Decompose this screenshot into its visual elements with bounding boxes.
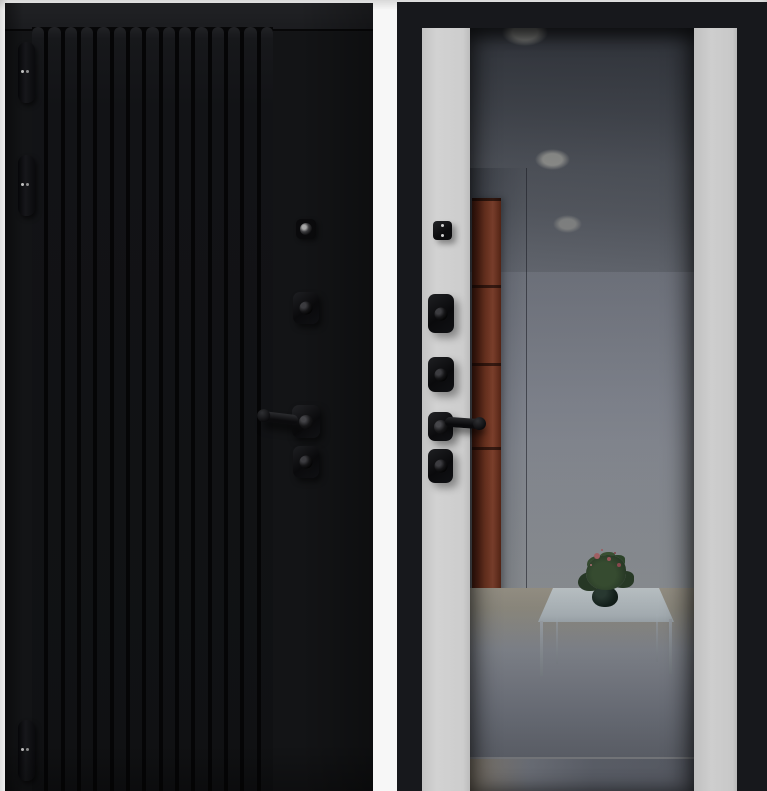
slat — [65, 27, 77, 791]
slat — [179, 27, 191, 791]
table-leg — [669, 619, 672, 674]
table-leg — [540, 621, 543, 676]
slat — [97, 27, 109, 791]
front-lower-lock — [293, 446, 319, 478]
door-back-panel — [397, 2, 767, 791]
slat — [81, 27, 93, 791]
slat — [244, 27, 256, 791]
slat — [48, 27, 60, 791]
slat — [32, 27, 44, 791]
door-front-panel — [5, 3, 373, 791]
slat — [228, 27, 240, 791]
slat — [130, 27, 142, 791]
slat — [195, 27, 207, 791]
slat — [146, 27, 158, 791]
side-strip-right — [694, 28, 737, 791]
back-lower-lock — [428, 449, 453, 483]
back-fixing-plate — [433, 221, 452, 240]
reflection-plant-flowers — [594, 553, 600, 559]
product-photo — [0, 0, 767, 791]
side-strip-left — [422, 28, 470, 791]
slat — [163, 27, 175, 791]
slat-cladding — [32, 27, 273, 791]
mirror-insert — [470, 28, 694, 791]
slat — [212, 27, 224, 791]
slat — [114, 27, 126, 791]
light — [535, 149, 570, 170]
back-middle-lock — [428, 357, 454, 392]
peephole — [296, 219, 316, 239]
table-leg — [556, 616, 558, 664]
light — [553, 215, 582, 233]
reflection-plant — [586, 555, 626, 590]
back-upper-lock — [428, 294, 454, 333]
light — [502, 28, 548, 46]
front-upper-lock — [293, 292, 319, 324]
